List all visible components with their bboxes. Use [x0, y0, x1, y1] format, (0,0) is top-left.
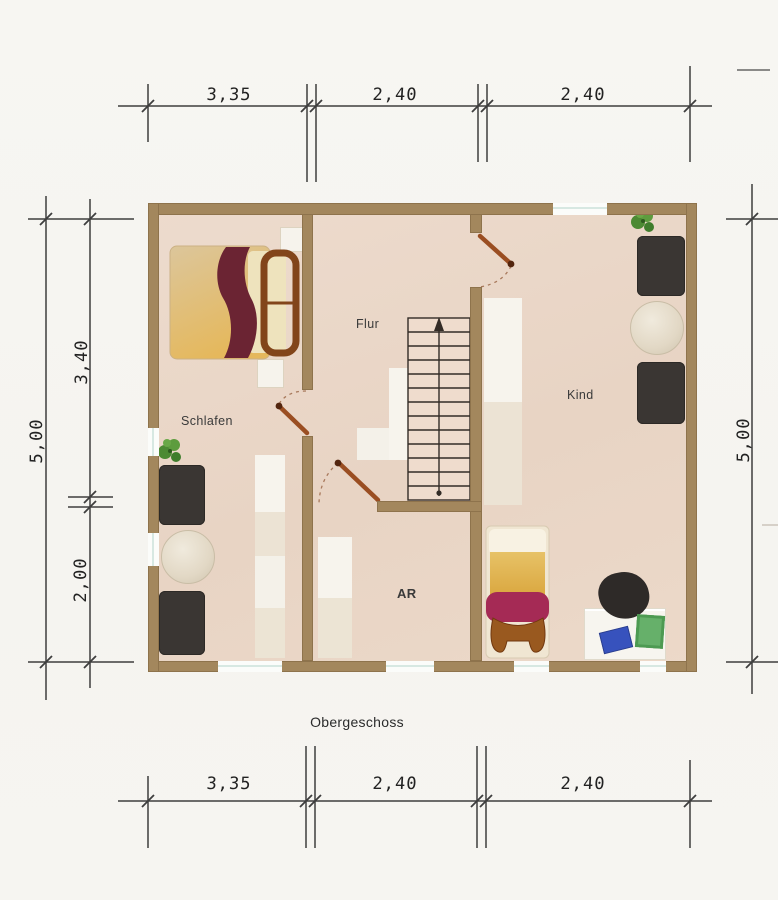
plan-drawings: [0, 0, 778, 900]
floor-title: Obergeschoss: [292, 714, 422, 730]
wall-top: [148, 203, 697, 215]
wall-flur-kind-stub: [470, 214, 482, 233]
wall-schlafen-flur-lower: [302, 436, 313, 661]
room-label-kind: Kind: [567, 388, 594, 402]
staircase: [408, 317, 470, 500]
plant-icon-schlafen: [158, 439, 181, 462]
door-schlafen: [276, 391, 307, 433]
single-bed: [486, 526, 549, 658]
wall-flur-kind-lower: [470, 287, 482, 661]
window-bottom-3: [514, 661, 549, 672]
room-label-schlafen: Schlafen: [181, 414, 233, 428]
window-bottom-1: [218, 661, 282, 672]
wall-schlafen-flur-upper: [302, 214, 313, 390]
window-left-1: [148, 428, 159, 456]
room-label-ar: AR: [397, 586, 417, 601]
door-kind: [480, 236, 514, 287]
double-bed: [170, 246, 296, 359]
door-ar: [319, 460, 378, 503]
wall-right: [686, 203, 697, 672]
window-bottom-2: [386, 661, 434, 672]
window-left-2: [148, 533, 159, 566]
window-top: [553, 203, 607, 215]
floorplan-canvas: 3,35 2,40 2,40 3,35 2,40 2,40 5,00 3,40 …: [0, 0, 778, 900]
room-label-flur: Flur: [356, 317, 379, 331]
window-bottom-4: [640, 661, 666, 672]
wall-flur-ar: [377, 501, 482, 512]
